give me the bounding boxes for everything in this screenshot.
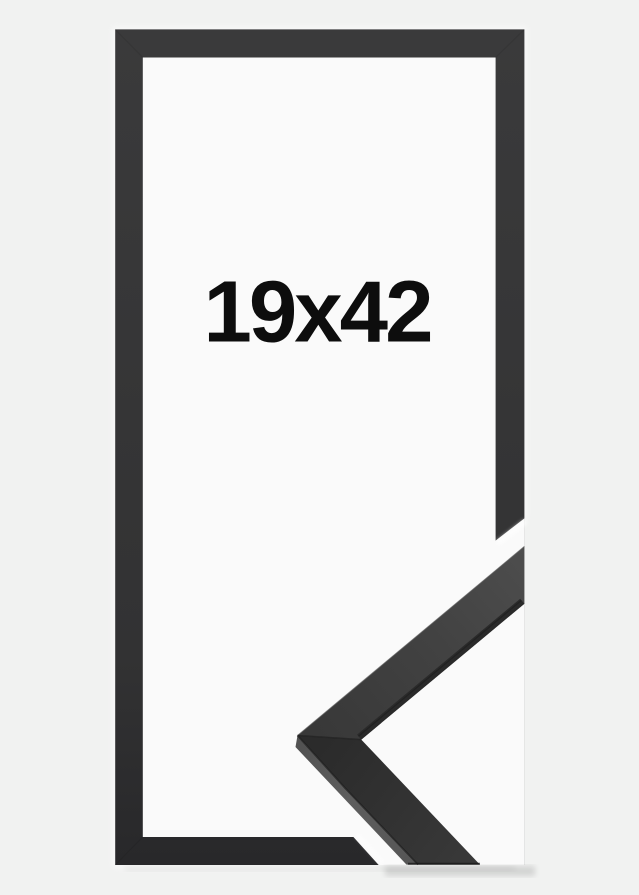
svg-text:19x42: 19x42 [204, 264, 431, 361]
